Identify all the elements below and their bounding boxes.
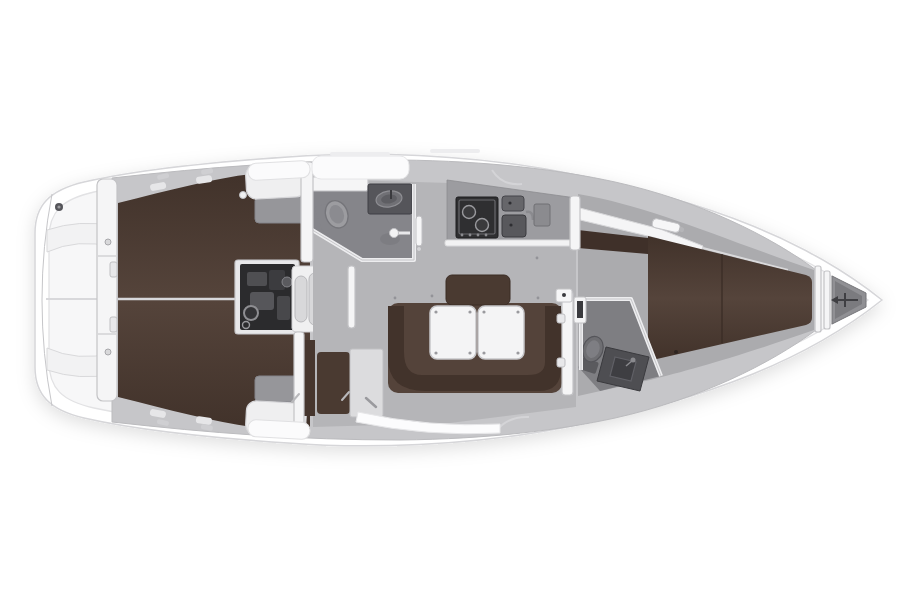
coachroof-band-top	[312, 156, 409, 179]
engine-part-1	[247, 272, 267, 286]
engine-pulley	[244, 306, 258, 320]
galley-sink-small	[502, 196, 524, 211]
aft-head-door	[416, 216, 422, 246]
fwd-bulkhead-hinge-2	[557, 358, 565, 367]
bow-bulkhead-1	[815, 266, 821, 332]
deck-cabinet-aft-bottom	[248, 419, 311, 439]
chart-table	[350, 349, 383, 417]
deck-cabinet-aft-top	[248, 160, 311, 180]
step-1	[295, 276, 307, 322]
sink-drain-2	[509, 223, 512, 226]
engine-part-4	[277, 296, 290, 320]
stove-burner-1	[463, 206, 476, 219]
bow-bulkhead-2	[824, 271, 830, 329]
deck-window-2	[330, 152, 390, 156]
fwd-bulkhead-lower	[562, 291, 573, 395]
fwd-head-door-inset	[577, 301, 583, 318]
v-berth-latch	[674, 350, 678, 354]
fwd-bulkhead-latch-dot	[562, 293, 566, 297]
settee-backrest	[446, 275, 510, 305]
stern-bulkhead	[97, 179, 117, 401]
aft-berth-latch	[240, 192, 247, 199]
galley-cover	[534, 204, 550, 226]
bulkhead-ring-top	[105, 239, 111, 245]
saloon-table-right	[478, 306, 524, 359]
stove	[456, 197, 498, 238]
saloon	[294, 162, 578, 429]
bulkhead-hinge-bottom	[110, 317, 117, 332]
engine-compartment	[235, 260, 299, 334]
floor-dot-1	[394, 297, 397, 300]
floor-dot-2	[431, 295, 434, 298]
galley-front-trim	[445, 240, 578, 246]
sink-drain-1	[508, 201, 511, 204]
stern-fitting-dot-inner	[57, 205, 60, 208]
aft-head-door-knob	[417, 247, 422, 252]
stove-burner-2	[476, 219, 489, 232]
wardrobe	[304, 340, 315, 416]
yacht-floor-plan	[0, 0, 900, 600]
floor-dot-3	[537, 297, 540, 300]
fwd-bulkhead-upper	[570, 196, 580, 250]
steps-side-wall	[348, 266, 355, 328]
deck-window-1	[430, 149, 480, 153]
aft-cabin-bulkhead	[97, 179, 117, 401]
engine-cap	[243, 322, 250, 329]
fwd-bulkhead-hinge-1	[557, 314, 565, 323]
galley-sink-large	[502, 215, 526, 237]
shower-head	[390, 229, 399, 238]
saloon-table-left	[430, 306, 476, 359]
bulkhead-ring-bottom	[105, 349, 111, 355]
bulkhead-hinge-top	[110, 262, 117, 277]
floor-dot-4	[536, 257, 539, 260]
aft-berth-cushion-gray-port	[255, 197, 307, 223]
engine-filter	[282, 277, 292, 287]
midship-wall-bottom	[294, 332, 304, 429]
nav-seat	[317, 352, 350, 414]
